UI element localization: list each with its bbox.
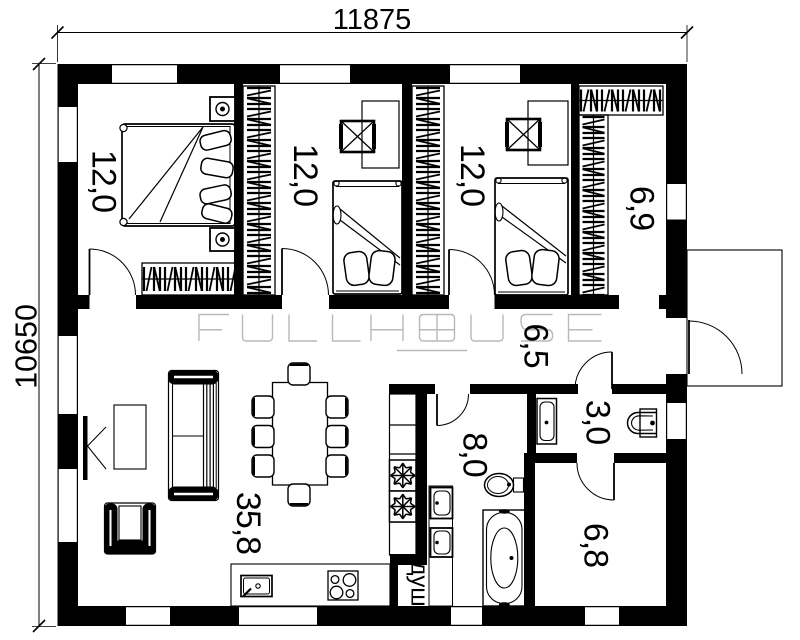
svg-text:12,0: 12,0: [453, 144, 491, 206]
svg-text:3,0: 3,0: [579, 400, 617, 444]
svg-text:6,5: 6,5: [517, 323, 555, 367]
svg-text:10650: 10650: [10, 304, 44, 389]
svg-text:11875: 11875: [333, 4, 412, 36]
svg-text:35,8: 35,8: [229, 492, 267, 554]
svg-text:12,0: 12,0: [85, 150, 123, 212]
svg-text:6,8: 6,8: [577, 523, 615, 567]
svg-text:6,9: 6,9: [623, 186, 661, 230]
svg-text:душ: душ: [406, 561, 433, 606]
svg-text:8,0: 8,0: [456, 432, 494, 476]
svg-text:12,0: 12,0: [286, 144, 324, 206]
